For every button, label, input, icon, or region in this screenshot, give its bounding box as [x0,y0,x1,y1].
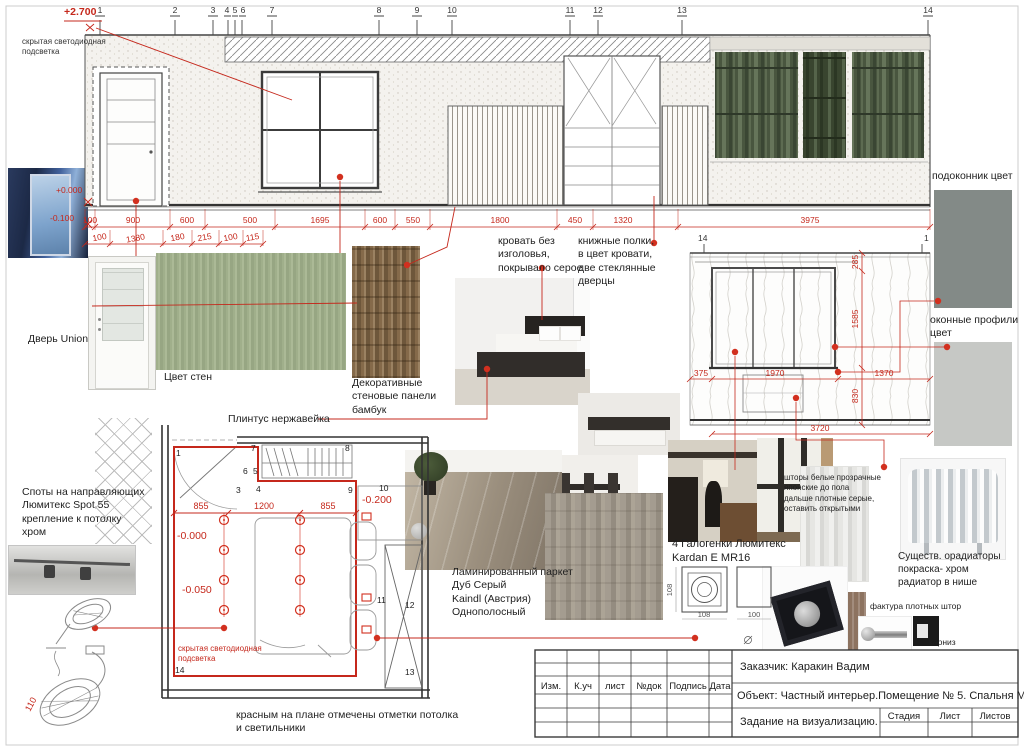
bed-platform [477,352,585,377]
lamp-sketches: 110 [23,592,115,734]
elevation-slat-panel [448,106,563,205]
elevation-slat-panel-2 [662,106,708,205]
level-ceiling: +2.700 [64,6,96,19]
window-wall-elevation: 14 1 285 1585 830 375 1970 1370 [687,233,950,470]
recessed-spot-lamp [791,597,823,629]
svg-text:10: 10 [379,483,389,493]
dim: 215 [197,231,213,243]
track-light-photo [8,545,136,595]
dim: 830 [850,389,860,403]
dim: 100 [92,231,108,243]
profiles-color-label: оконные профили цвет [930,314,1018,341]
dim: 550 [406,215,420,225]
grid-label: 8 [377,5,382,15]
bamboo-wall-photos [710,52,928,162]
tb-col: №док [636,681,662,692]
fixture-dim-side: 108 [665,584,674,597]
plan-level-0: -0.000 [177,530,207,543]
bed-note: кровать без изголовья, покрывало серое [498,235,582,275]
dim: 3975 [801,215,820,225]
tb-stage: Листов [980,711,1011,722]
door-glass [102,268,144,341]
dim: 1800 [491,215,510,225]
grid-label: 7 [270,5,275,15]
dim: 500 [243,215,257,225]
tb-task: Задание на визуализацию. [740,716,878,728]
dim: 900 [126,215,140,225]
grid-label: 6 [241,5,246,15]
plan-nodes: 1 3 4 5 6 7 8 9 10 11 12 13 14 [175,443,415,677]
track-spot-centers [223,519,301,611]
window-profile-color-swatch [934,342,1012,446]
sill-color-label: подоконник цвет [932,170,1013,183]
tb-client: Заказчик: Каракин Вадим [740,661,870,673]
ceiling-outline-red [174,447,356,676]
bamboo-panel-swatch [352,246,420,378]
bed-sketch [255,518,376,657]
svg-text:13: 13 [405,667,415,677]
grid-label: 11 [566,5,575,15]
svg-text:12: 12 [405,600,415,610]
tb-stage: Стадия [888,711,920,722]
glass-door-photo [8,168,88,258]
wall-color-swatch [156,253,346,370]
fabric-note: фактура плотных штор [870,601,961,612]
dim: 1585 [850,309,860,328]
dim: 855 [193,501,208,511]
grid-axis [95,16,933,35]
grid-label: 4 [225,5,230,15]
title-block: Изм. К.уч лист №док Подпись Дата Стадия … [535,650,1024,737]
sill-color-swatch [934,190,1012,308]
cornice-note: карниз [929,637,956,648]
svg-text:9: 9 [348,485,353,495]
halogen-note: 4 Галогенки Люмитекс Kardan E MR16 [672,537,786,565]
interior-photo [668,440,761,542]
radiator-photo [900,458,1006,560]
curtains-note: шторы белые прозрачные японские до пола … [784,473,881,515]
track-rail [14,559,130,566]
elevation-door [93,67,169,206]
plinth-label: Плинтус нержавейка [228,413,330,426]
finial-knob [861,627,875,641]
recessed-spot-frame [771,580,845,646]
grid-label: 10 [447,5,457,15]
level-zero: +0.000 [56,185,82,196]
svg-text:4: 4 [256,484,261,494]
hidden-light-note-top: скрытая светодиодная подсветка [22,37,106,58]
dim: 375 [694,368,708,378]
track-spot-2 [80,567,91,580]
door-union-photo [88,256,156,390]
radiators-note: Существ. орадиаторы покраска- хром радиа… [898,551,1001,589]
spotlight-drawings: 108 100 108 [665,567,771,644]
plan-level-50: -0.050 [182,584,212,597]
tb-col: Дата [709,681,731,692]
track-spots [220,513,305,617]
interior-beam [668,452,761,458]
bed-pillow [539,326,560,341]
grid-label: 2 [173,5,178,15]
svg-text:14: 14 [175,665,185,675]
svg-text:3: 3 [236,485,241,495]
door-handle [98,318,101,321]
radiator-body [908,469,997,543]
dim: 3720 [811,423,830,433]
plan-note: красным на плане отмечены отметки потолк… [236,709,458,736]
dim: 1320 [614,215,633,225]
grid-label: 5 [233,5,238,15]
dim: 1370 [875,368,894,378]
halogen-squares [362,513,371,633]
dim: 855 [320,501,335,511]
level-minus: -0.100 [50,213,74,224]
window-wall-dims [687,250,947,470]
bedroom2-bed [594,430,665,446]
tb-col: К.уч [574,681,592,692]
dim: 600 [180,215,194,225]
dim: 1200 [254,501,274,511]
spots-note: Споты на направляющих Люмитекс Spot 55 к… [22,486,145,540]
tb-object: Объект: Частный интерьер.Помещение № 5. … [737,690,1024,702]
track-spot [44,565,55,578]
grid-label: 3 [211,5,216,15]
dim: 450 [568,215,582,225]
svg-text:1: 1 [176,448,181,458]
dim: 100 [223,231,239,243]
grid-label: 1 [924,233,929,243]
red-dots-plan [92,625,698,641]
dim: 285 [850,255,860,269]
bed-photo [455,278,590,405]
svg-text:8: 8 [345,443,350,453]
elevation-window-partition [258,72,382,192]
cornice-finial-photo [858,616,912,652]
bedroom-photo-2 [578,393,680,455]
bedroom2-headboard [588,417,670,431]
grid-label: 14 [698,233,708,243]
lamp-dim: 110 [23,696,39,713]
recessed-spot-photo [762,566,848,654]
wardrobe-sketch [262,445,352,478]
dim: 1695 [311,215,330,225]
bamboo-panels-label: Декоративные стеновые панели бамбук [352,377,436,417]
design-sheet: 1 2 3 4 5 6 7 8 9 10 11 12 13 14 [0,0,1024,751]
fixture-dim-w: 108 [698,610,711,619]
plan-dims [171,510,359,516]
plant [414,452,448,482]
svg-text:5: 5 [253,466,258,476]
svg-text:6: 6 [243,466,248,476]
decor-ball [411,523,427,539]
tb-col: Изм. [541,681,561,692]
plant-pot [424,481,436,495]
svg-text:11: 11 [377,595,386,605]
bracket-inner [917,624,928,637]
wall-color-label: Цвет стен [164,371,212,384]
dim: 115 [245,231,260,243]
laminate-note: Ламинированный паркет Дуб Серый Kaindl (… [452,566,573,620]
elevation-bookshelf [564,56,660,205]
door-union-label: Дверь Union [28,333,88,346]
grid-label: 12 [593,5,603,15]
tb-stage: Лист [940,711,961,722]
tb-col: лист [605,681,626,692]
grid-label: 14 [923,5,933,15]
plan-level-200: -0.200 [362,494,392,507]
laminate-photo [405,450,562,570]
shelves-note: книжные полки, в цвет кровати, две стекл… [578,235,656,289]
svg-text:7: 7 [251,443,256,453]
dim: 600 [373,215,387,225]
fixture-dim-h: 100 [748,610,761,619]
dim: 1380 [125,231,146,244]
plan-hidden-light-note: скрытая светодиодная подсветка [178,644,262,665]
tb-col: Подпись [669,681,707,692]
grid-label: 1 [98,5,103,15]
interior-sofa [668,477,698,542]
dim: 1970 [766,368,785,378]
grid-label: 9 [415,5,420,15]
bed-pillow-2 [560,326,581,341]
grid-label: 13 [677,5,687,15]
dim: 180 [170,231,186,243]
